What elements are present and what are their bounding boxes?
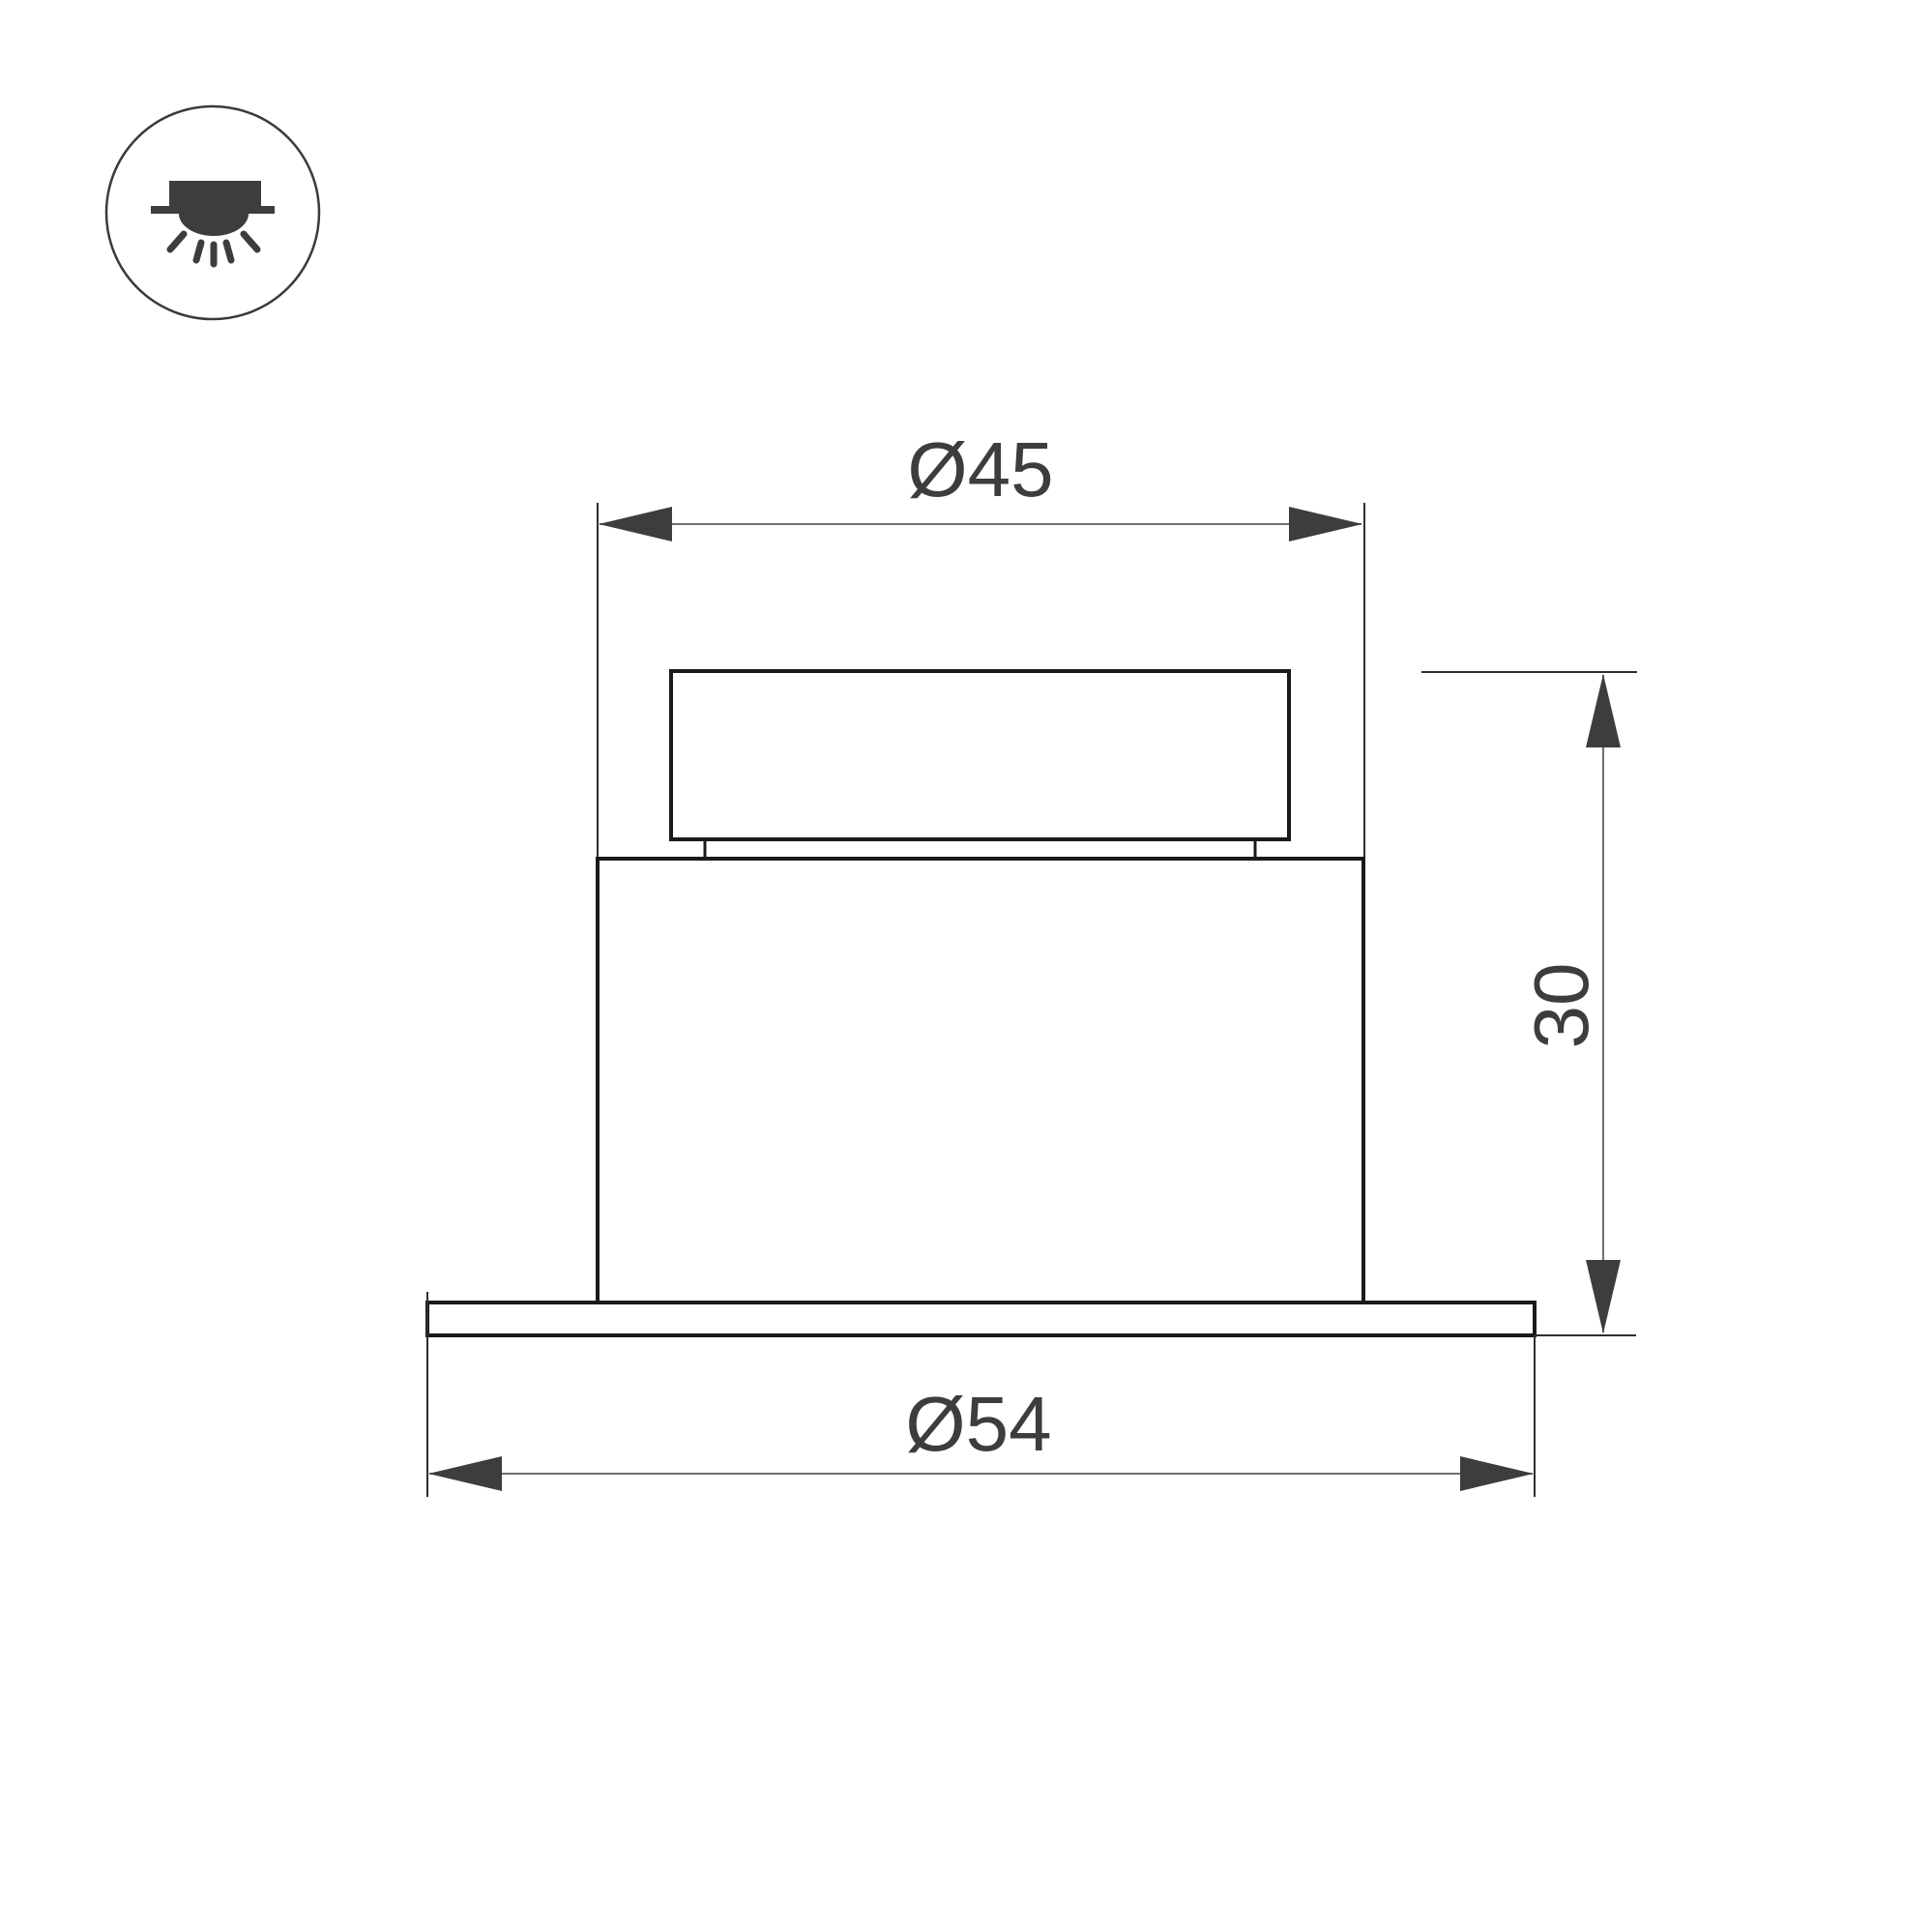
fixture-profile [427,671,1535,1335]
mounting-flange [427,1303,1535,1335]
light-ray [226,243,231,260]
dim30-label: 30 [1518,963,1604,1049]
light-ray [196,243,201,260]
dim30-arrow-bottom [1586,1260,1621,1333]
dim45-arrow-right [1289,507,1362,542]
upper-housing [671,671,1289,839]
dim30-arrow-top [1586,674,1621,747]
dim54-arrow-left [428,1456,502,1491]
dim45-arrow-left [599,507,672,542]
downlight-housing-icon [169,181,261,208]
dim54-label: Ø54 [905,1381,1051,1467]
mount-type-icon [106,106,319,319]
drawing-canvas: Ø45 Ø54 30 [0,0,1932,1932]
dimension-drawing: Ø45 Ø54 30 [0,0,1932,1932]
dim54-arrow-right [1460,1456,1534,1491]
lower-housing [598,859,1363,1303]
dim45-label: Ø45 [907,426,1053,512]
dimension-height: 30 [1421,672,1637,1335]
ceiling-line-icon [151,206,275,214]
